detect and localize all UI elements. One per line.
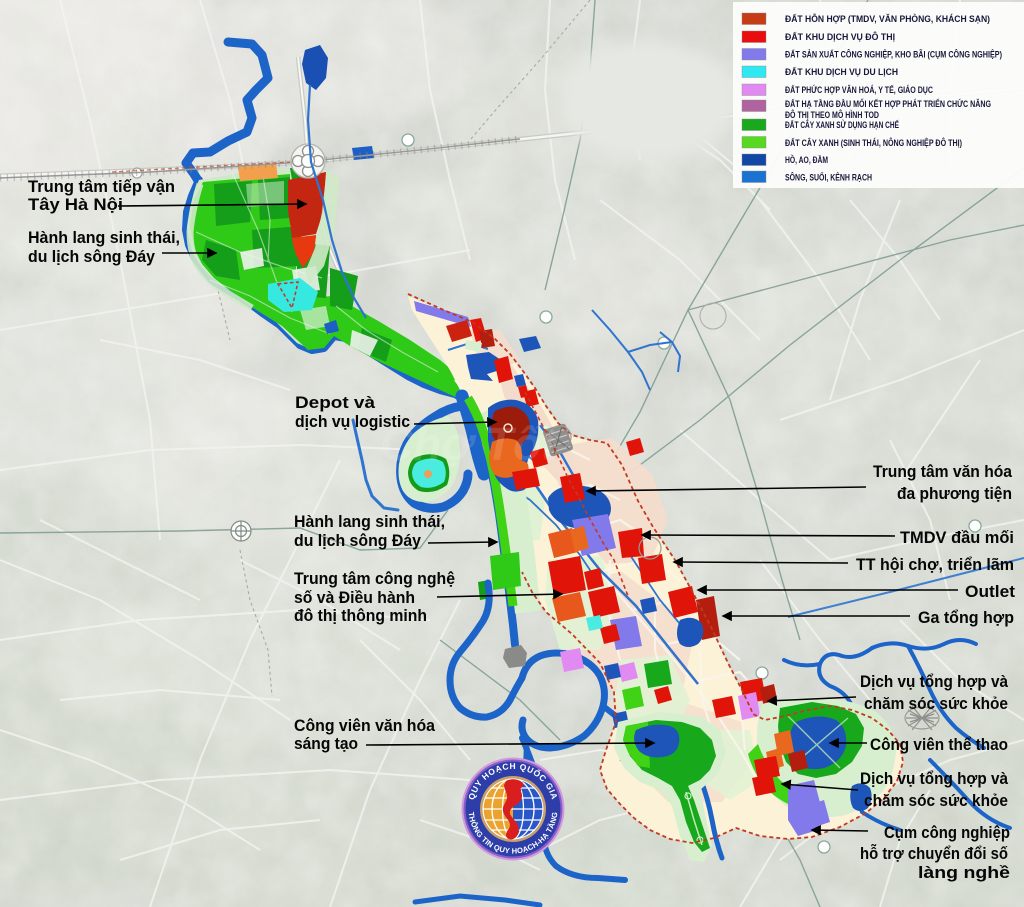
svg-text:du lịch sông Đáy: du lịch sông Đáy (294, 532, 422, 550)
svg-text:đô thị thông minh: đô thị thông minh (294, 607, 427, 625)
svg-text:Hành lang sinh thái,: Hành lang sinh thái, (28, 229, 180, 247)
svg-text:Outlet: Outlet (965, 583, 1016, 601)
svg-text:TT hội chợ, triển lãm: TT hội chợ, triển lãm (856, 556, 1014, 574)
svg-text:du lịch sông Đáy: du lịch sông Đáy (28, 248, 156, 266)
svg-text:Dịch vụ tổng hợp và: Dịch vụ tổng hợp và (860, 673, 1009, 691)
svg-text:chăm sóc sức khỏe: chăm sóc sức khỏe (864, 792, 1008, 810)
svg-text:Tây Hà Nội: Tây Hà Nội (28, 196, 123, 214)
svg-text:ĐẤT SẢN XUẤT CÔNG NGHIỆP, KHO: ĐẤT SẢN XUẤT CÔNG NGHIỆP, KHO BÃI (CỤM C… (785, 49, 1002, 60)
svg-text:Trung tâm văn hóa: Trung tâm văn hóa (873, 463, 1013, 481)
svg-text:hỗ trợ chuyển đổi số: hỗ trợ chuyển đổi số (860, 844, 1008, 863)
svg-text:ĐẤT HẠ TẦNG ĐẦU MỐI KẾT HỢP PH: ĐẤT HẠ TẦNG ĐẦU MỐI KẾT HỢP PHÁT TRIỂN C… (785, 98, 991, 109)
svg-text:Công viên văn hóa: Công viên văn hóa (294, 717, 436, 735)
svg-text:Cụm công nghiệp: Cụm công nghiệp (884, 824, 1010, 842)
svg-text:HỒ, AO, ĐẦM: HỒ, AO, ĐẦM (785, 154, 828, 165)
svg-text:TMDV đầu mối: TMDV đầu mối (900, 529, 1014, 547)
svg-text:số và Điều hành: số và Điều hành (294, 589, 415, 607)
svg-text:làng nghề: làng nghề (918, 864, 1010, 882)
svg-text:đa phương tiện: đa phương tiện (897, 485, 1012, 503)
svg-text:Dịch vụ tổng hợp và: Dịch vụ tổng hợp và (860, 770, 1009, 788)
svg-text:dịch vụ logistic: dịch vụ logistic (295, 413, 410, 431)
svg-text:ĐẤT KHU DỊCH VỤ DU LỊCH: ĐẤT KHU DỊCH VỤ DU LỊCH (785, 67, 898, 77)
svg-text:ĐẤT HỖN HỢP (TMDV, VĂN PHÒNG,: ĐẤT HỖN HỢP (TMDV, VĂN PHÒNG, KHÁCH SẠN) (785, 13, 990, 24)
svg-text:Trung tâm tiếp vận: Trung tâm tiếp vận (28, 178, 175, 196)
svg-text:ĐÔ THỊ THEO MÔ HÌNH TOD: ĐÔ THỊ THEO MÔ HÌNH TOD (785, 109, 879, 120)
svg-text:Ga tổng hợp: Ga tổng hợp (918, 609, 1014, 627)
svg-text:Hành lang sinh thái,: Hành lang sinh thái, (294, 513, 445, 531)
svg-text:ĐẤT CÂY XANH (SINH THÁI, NÔNG: ĐẤT CÂY XANH (SINH THÁI, NÔNG NGHIỆP ĐÔ … (785, 137, 962, 148)
svg-text:sáng tạo: sáng tạo (294, 735, 358, 753)
svg-text:ĐẤT PHỨC HỢP VĂN HOÁ, Y TẾ, GI: ĐẤT PHỨC HỢP VĂN HOÁ, Y TẾ, GIÁO DỤC (785, 84, 933, 95)
svg-text:ĐẤT KHU DỊCH VỤ ĐÔ THỊ: ĐẤT KHU DỊCH VỤ ĐÔ THỊ (785, 31, 895, 42)
svg-text:ĐẤT CÂY XANH SỬ DỤNG HẠN CHẾ: ĐẤT CÂY XANH SỬ DỤNG HẠN CHẾ (785, 119, 899, 130)
svg-text:chăm sóc sức khỏe: chăm sóc sức khỏe (864, 695, 1008, 713)
svg-text:Công viên thể thao: Công viên thể thao (870, 736, 1008, 754)
svg-text:Depot và: Depot và (295, 394, 376, 412)
svg-text:SÔNG, SUỐI, KÊNH RẠCH: SÔNG, SUỐI, KÊNH RẠCH (785, 172, 872, 183)
svg-text:Trung tâm công nghệ: Trung tâm công nghệ (294, 570, 455, 588)
